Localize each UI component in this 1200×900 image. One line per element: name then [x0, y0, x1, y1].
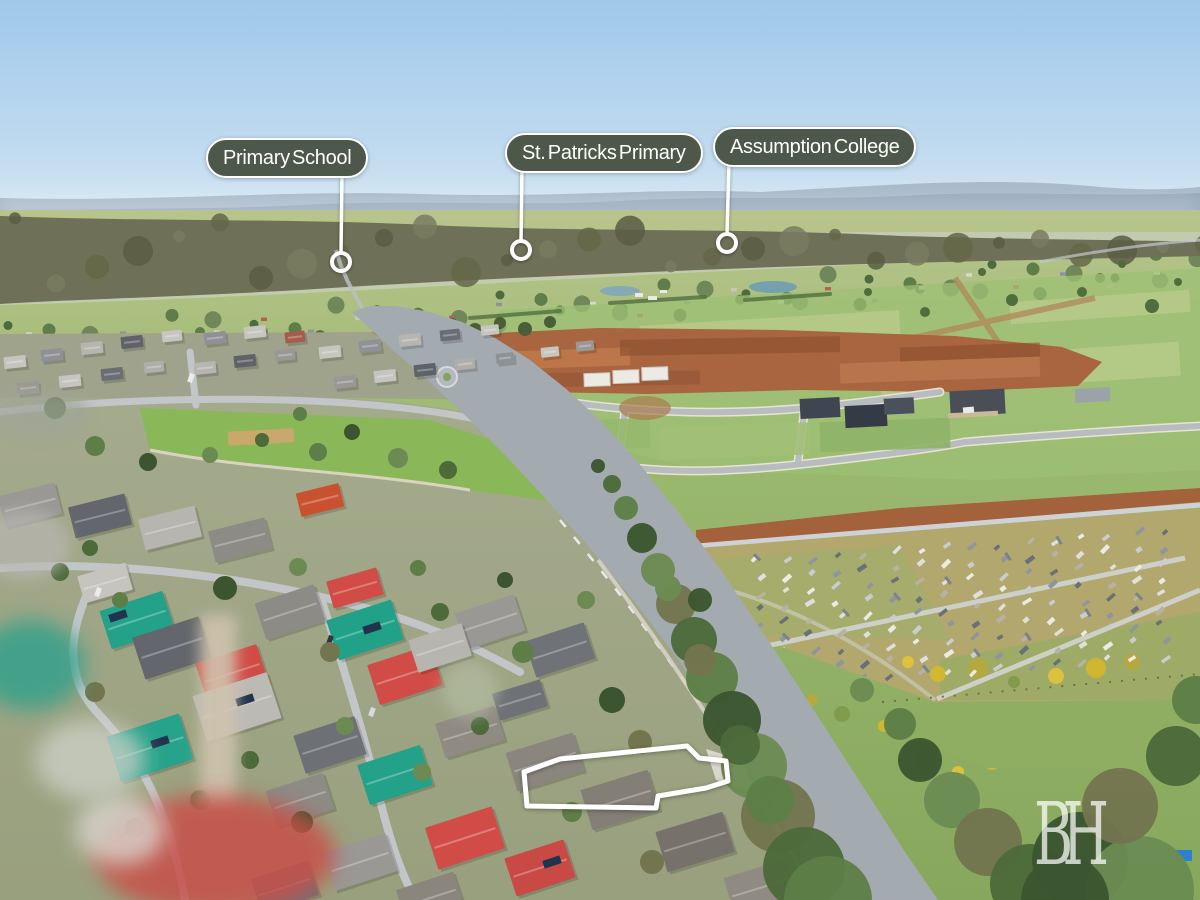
pond [749, 281, 797, 293]
label-st-patricks-primary: St. Patricks Primary [505, 133, 703, 173]
pond [600, 286, 640, 296]
label-assumption-college: Assumption College [713, 127, 916, 167]
label-primary-school: Primary School [206, 138, 368, 178]
agency-watermark-monogram: BH [1034, 792, 1098, 878]
aerial-photo: Primary School St. Patricks Primary Assu… [0, 0, 1200, 900]
